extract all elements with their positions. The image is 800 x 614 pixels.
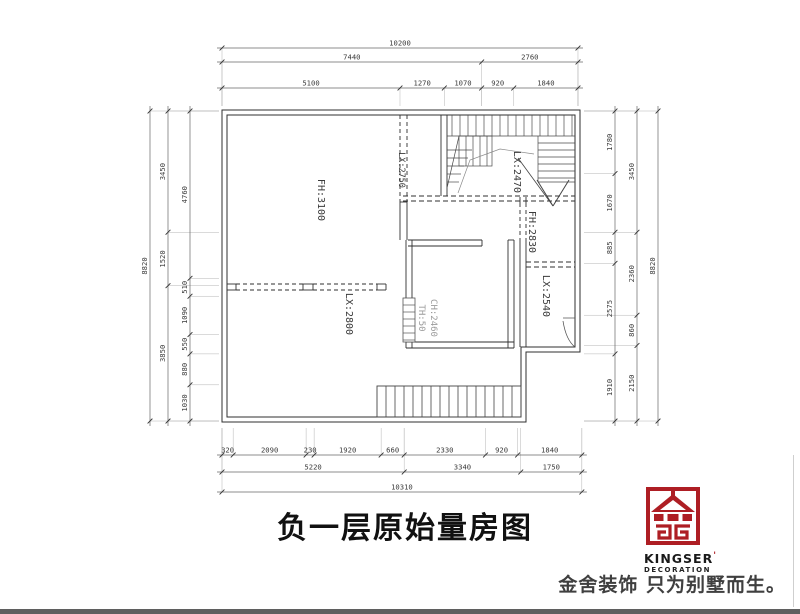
staircase — [447, 115, 575, 206]
dim-label: 880 — [180, 363, 189, 376]
room-label-lx2540: LX:2540 — [540, 275, 551, 317]
dimensions-bottom: 3202090230192066023309201840522033401750… — [217, 446, 587, 495]
room-label-ch2460: CH:2460 — [428, 299, 438, 337]
sheet-bottom-edge — [0, 609, 800, 614]
dim-label: 320 — [221, 446, 234, 455]
dim-label: 920 — [491, 79, 504, 88]
room-label-fh3100: FH:3100 — [315, 179, 326, 221]
dim-label: 3450 — [627, 163, 636, 180]
room-label-th50: TH:50 — [416, 304, 426, 331]
dim-label: 550 — [180, 338, 189, 351]
kingser-logo-mark — [646, 487, 700, 545]
dim-label: 2360 — [627, 265, 636, 282]
dim-label: 10200 — [389, 39, 411, 48]
room-label-fh2830: FH:2830 — [526, 211, 537, 253]
dim-label: 10310 — [391, 483, 413, 492]
dim-label: 2330 — [436, 446, 453, 455]
dim-label: 2090 — [261, 446, 278, 455]
dim-label: 3340 — [454, 463, 471, 472]
brand-name: KINGSER' — [644, 549, 702, 566]
dim-label: 2760 — [521, 53, 538, 62]
dim-label: 860 — [627, 324, 636, 337]
room-labels: FH:3100LX:2750LX:2470FH:2830LX:2540LX:28… — [315, 151, 551, 337]
dim-label: 1090 — [180, 307, 189, 324]
dim-label: 1030 — [180, 394, 189, 411]
dimensions-left: 8820345015203850476051010905508801030 — [140, 106, 193, 426]
dim-label: 4760 — [180, 186, 189, 203]
kingser-logo: KINGSER' DECORATION — [644, 487, 702, 574]
dim-label: 1920 — [339, 446, 356, 455]
sheet-right-edge — [793, 455, 794, 607]
dim-label: 1840 — [541, 446, 558, 455]
room-label-lx2470: LX:2470 — [511, 151, 522, 193]
dim-label: 885 — [605, 241, 614, 254]
brand-mark: ' — [713, 551, 717, 561]
room-label-lx2800: LX:2800 — [343, 293, 354, 335]
dim-label: 7440 — [343, 53, 360, 62]
dim-label: 1840 — [537, 79, 554, 88]
drawing-title: 负一层原始量房图 — [210, 503, 600, 547]
dim-label: 5220 — [304, 463, 321, 472]
dim-label: 1520 — [158, 250, 167, 267]
hatch-strip — [377, 298, 521, 417]
room-label-lx2750: LX:2750 — [396, 152, 406, 188]
dim-label: 230 — [304, 446, 317, 455]
dim-label: 1270 — [413, 79, 430, 88]
dim-label: 3850 — [158, 345, 167, 362]
dim-label: 8820 — [648, 257, 657, 274]
dim-label: 510 — [180, 281, 189, 294]
dim-label: 1070 — [454, 79, 471, 88]
floorplan-sheet: 1020074402760510012701070920184032020902… — [0, 0, 800, 614]
dimensions-right: 17801670885257519103450236086021508820 — [605, 106, 661, 426]
dim-label: 5100 — [302, 79, 319, 88]
dim-label: 1670 — [605, 194, 614, 211]
dim-label: 3450 — [158, 163, 167, 180]
dim-label: 660 — [386, 446, 399, 455]
brand-tagline: 金舍装饰 只为别墅而生。 — [558, 570, 786, 597]
dim-label: 920 — [495, 446, 508, 455]
dim-label: 1780 — [605, 134, 614, 151]
dim-label: 2575 — [605, 300, 614, 317]
dim-label: 1910 — [605, 379, 614, 396]
dim-label: 1750 — [543, 463, 560, 472]
dimensions-top: 10200744027605100127010709201840 — [217, 39, 583, 91]
dim-label: 8820 — [140, 257, 149, 274]
dim-label: 2150 — [627, 375, 636, 392]
